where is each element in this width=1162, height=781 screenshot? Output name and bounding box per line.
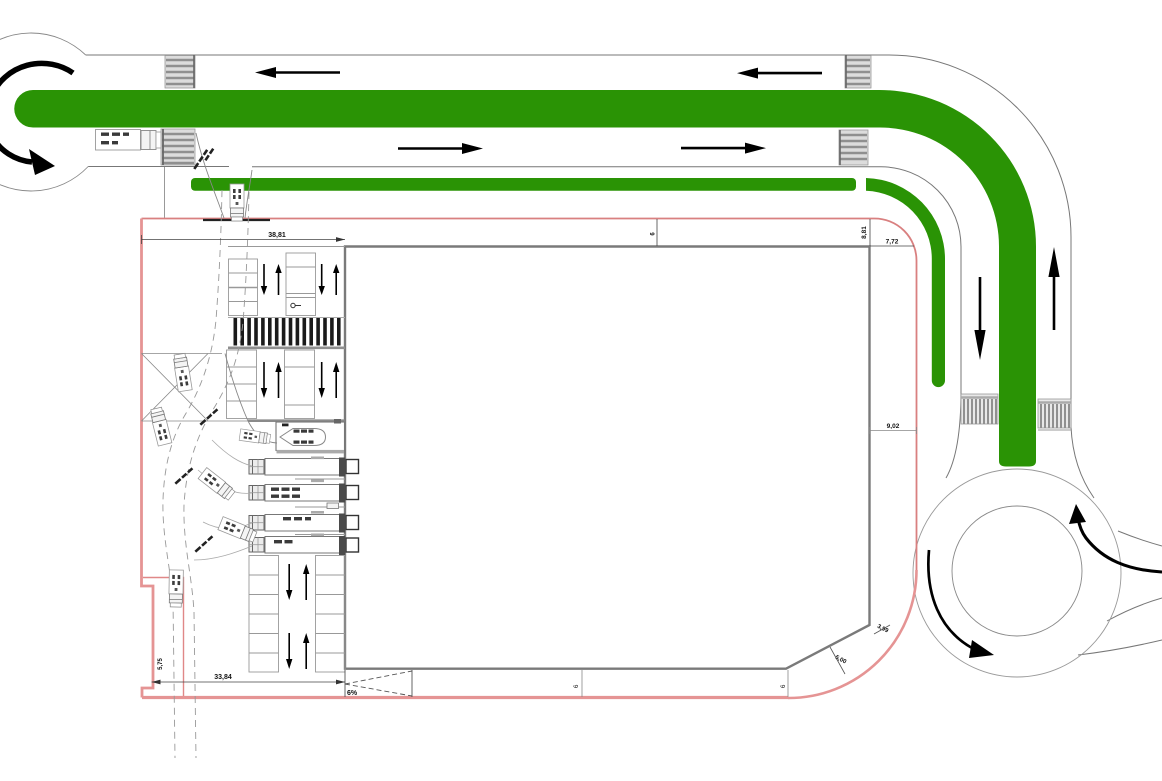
- svg-text:7,72: 7,72: [886, 239, 899, 246]
- svg-text:8,81: 8,81: [861, 226, 868, 239]
- svg-text:5,00: 5,00: [834, 655, 848, 666]
- svg-text:6%: 6%: [347, 690, 358, 697]
- svg-text:6: 6: [651, 232, 657, 236]
- svg-text:6: 6: [781, 684, 787, 688]
- svg-text:5,75: 5,75: [158, 658, 164, 670]
- svg-text:9,02: 9,02: [887, 423, 900, 430]
- svg-text:33,84: 33,84: [214, 674, 232, 681]
- svg-text:38,81: 38,81: [268, 232, 286, 239]
- svg-text:6: 6: [574, 684, 580, 688]
